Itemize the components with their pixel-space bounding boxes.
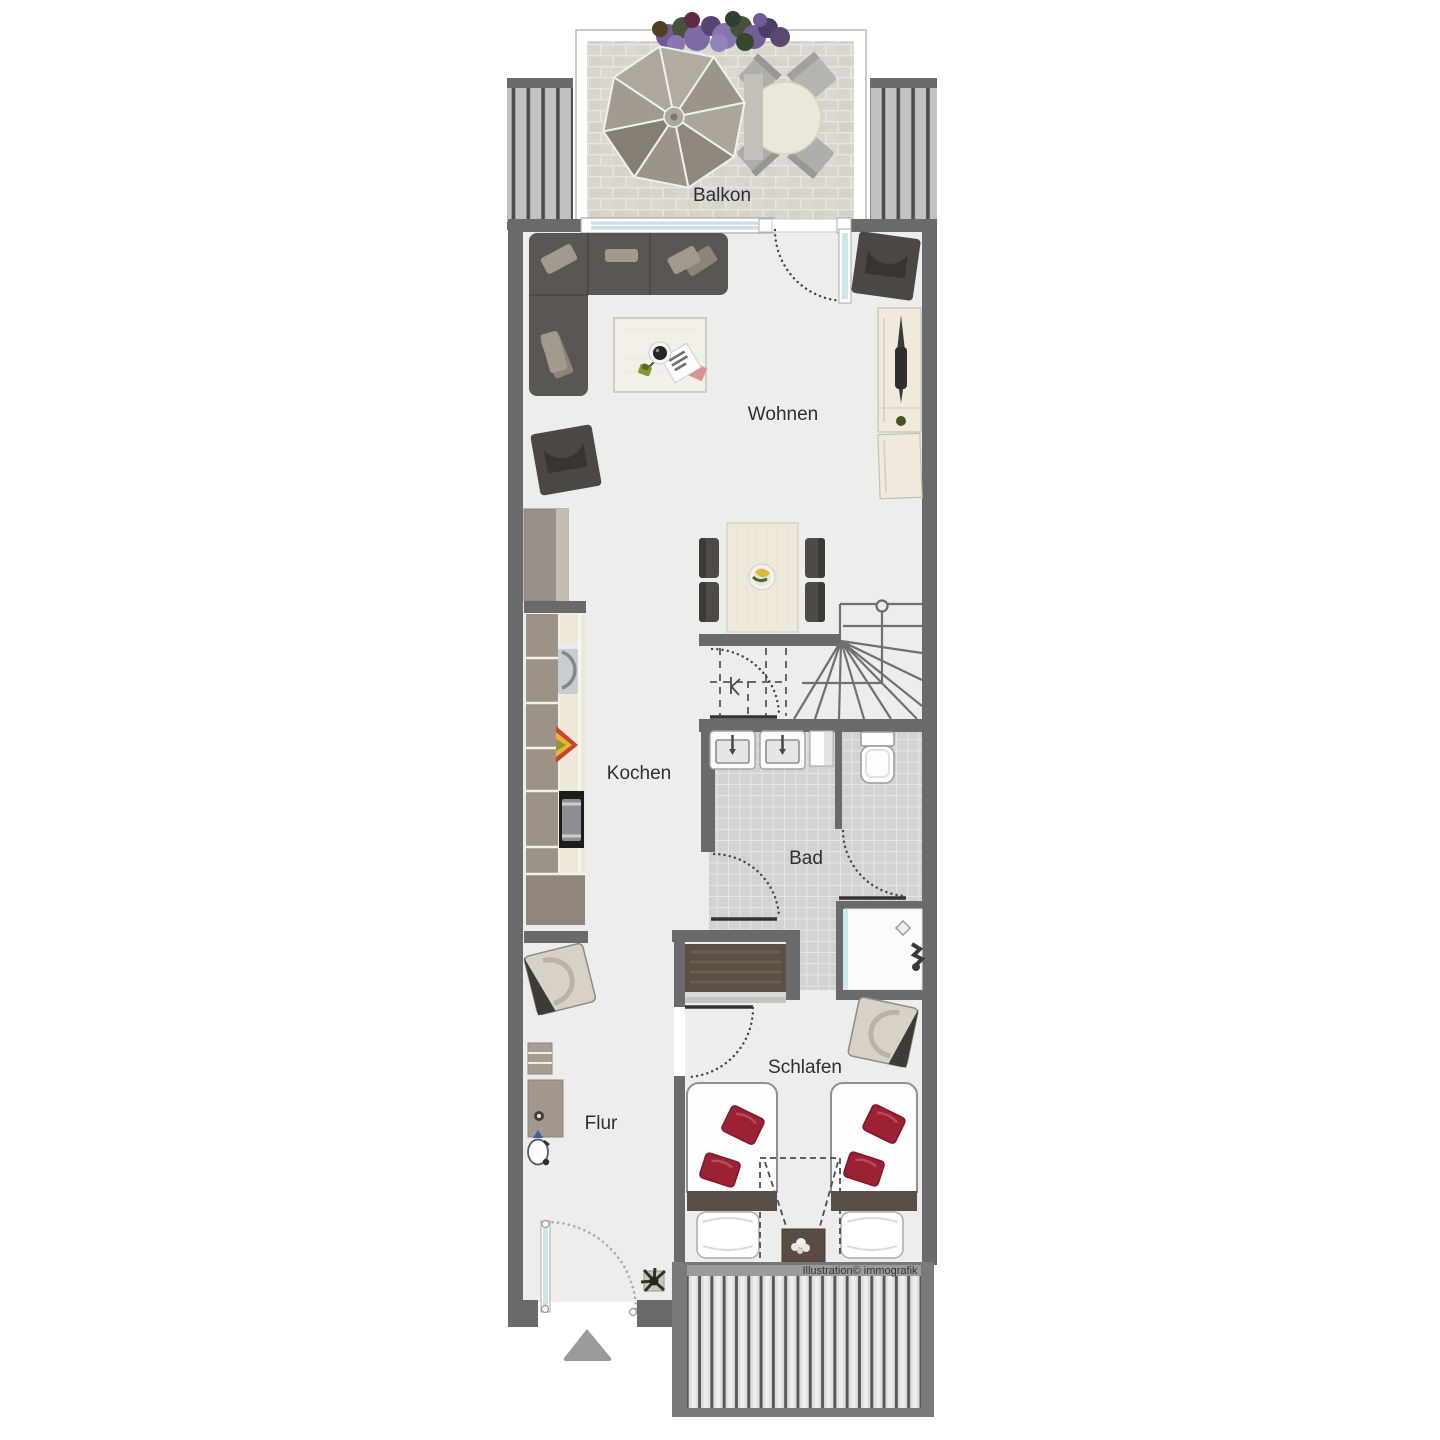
svg-text:Wohnen: Wohnen [748, 404, 818, 425]
svg-text:Kochen: Kochen [607, 763, 671, 784]
svg-text:Illustration© immografik: Illustration© immografik [802, 1265, 918, 1277]
svg-text:Bad: Bad [789, 848, 823, 869]
svg-text:Balkon: Balkon [693, 185, 751, 206]
svg-text:Flur: Flur [585, 1113, 618, 1134]
svg-text:Schlafen: Schlafen [768, 1057, 842, 1078]
